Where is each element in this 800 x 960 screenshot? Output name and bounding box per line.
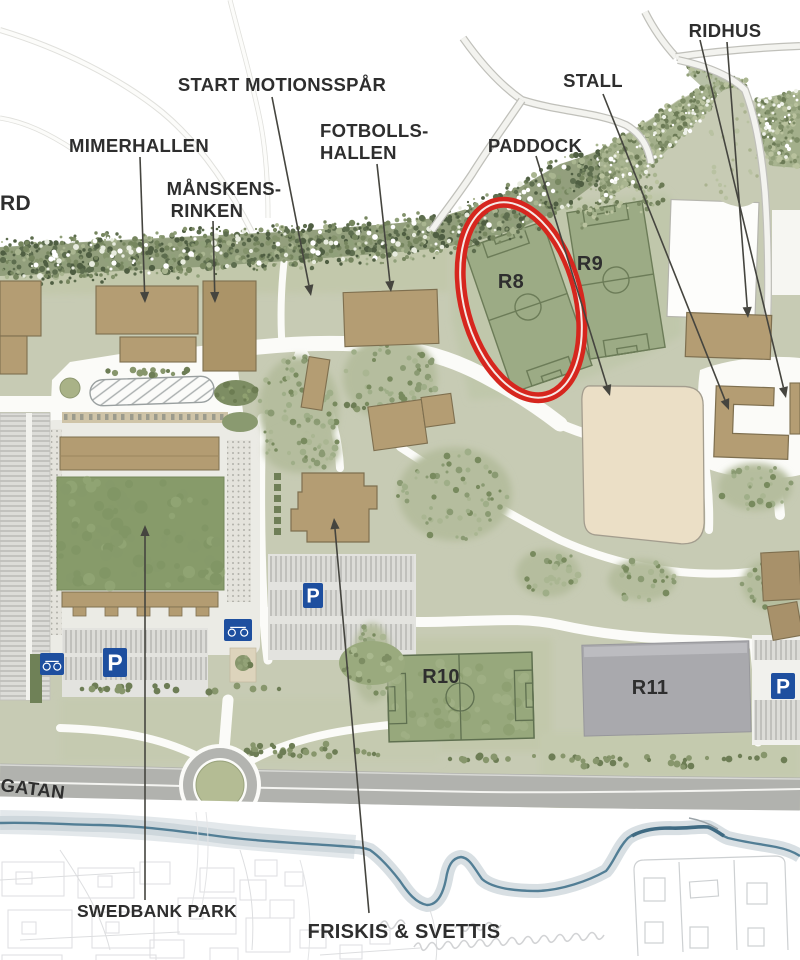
svg-text:R9: R9 bbox=[577, 253, 603, 275]
svg-text:FOTBOLLS-: FOTBOLLS- bbox=[320, 120, 429, 141]
svg-text:RINKEN: RINKEN bbox=[171, 200, 244, 221]
svg-text:R8: R8 bbox=[498, 271, 524, 293]
svg-text:R10: R10 bbox=[422, 666, 460, 688]
svg-text:HALLEN: HALLEN bbox=[320, 142, 397, 163]
svg-text:FRISKIS & SVETTIS: FRISKIS & SVETTIS bbox=[308, 921, 501, 943]
svg-text:R11: R11 bbox=[632, 677, 669, 699]
svg-text:P: P bbox=[107, 650, 122, 676]
svg-text:START MOTIONSSPÅR: START MOTIONSSPÅR bbox=[178, 74, 386, 95]
svg-text:RIDHUS: RIDHUS bbox=[689, 20, 762, 41]
svg-text:SWEDBANK PARK: SWEDBANK PARK bbox=[77, 901, 237, 921]
svg-text:P: P bbox=[306, 586, 319, 608]
svg-text:RD: RD bbox=[0, 192, 31, 215]
svg-text:MIMERHALLEN: MIMERHALLEN bbox=[69, 135, 209, 156]
svg-text:PADDOCK: PADDOCK bbox=[488, 135, 583, 156]
svg-text:P: P bbox=[776, 675, 790, 698]
svg-text:STALL: STALL bbox=[563, 70, 623, 91]
svg-text:MÅNSKENS-: MÅNSKENS- bbox=[167, 178, 282, 199]
